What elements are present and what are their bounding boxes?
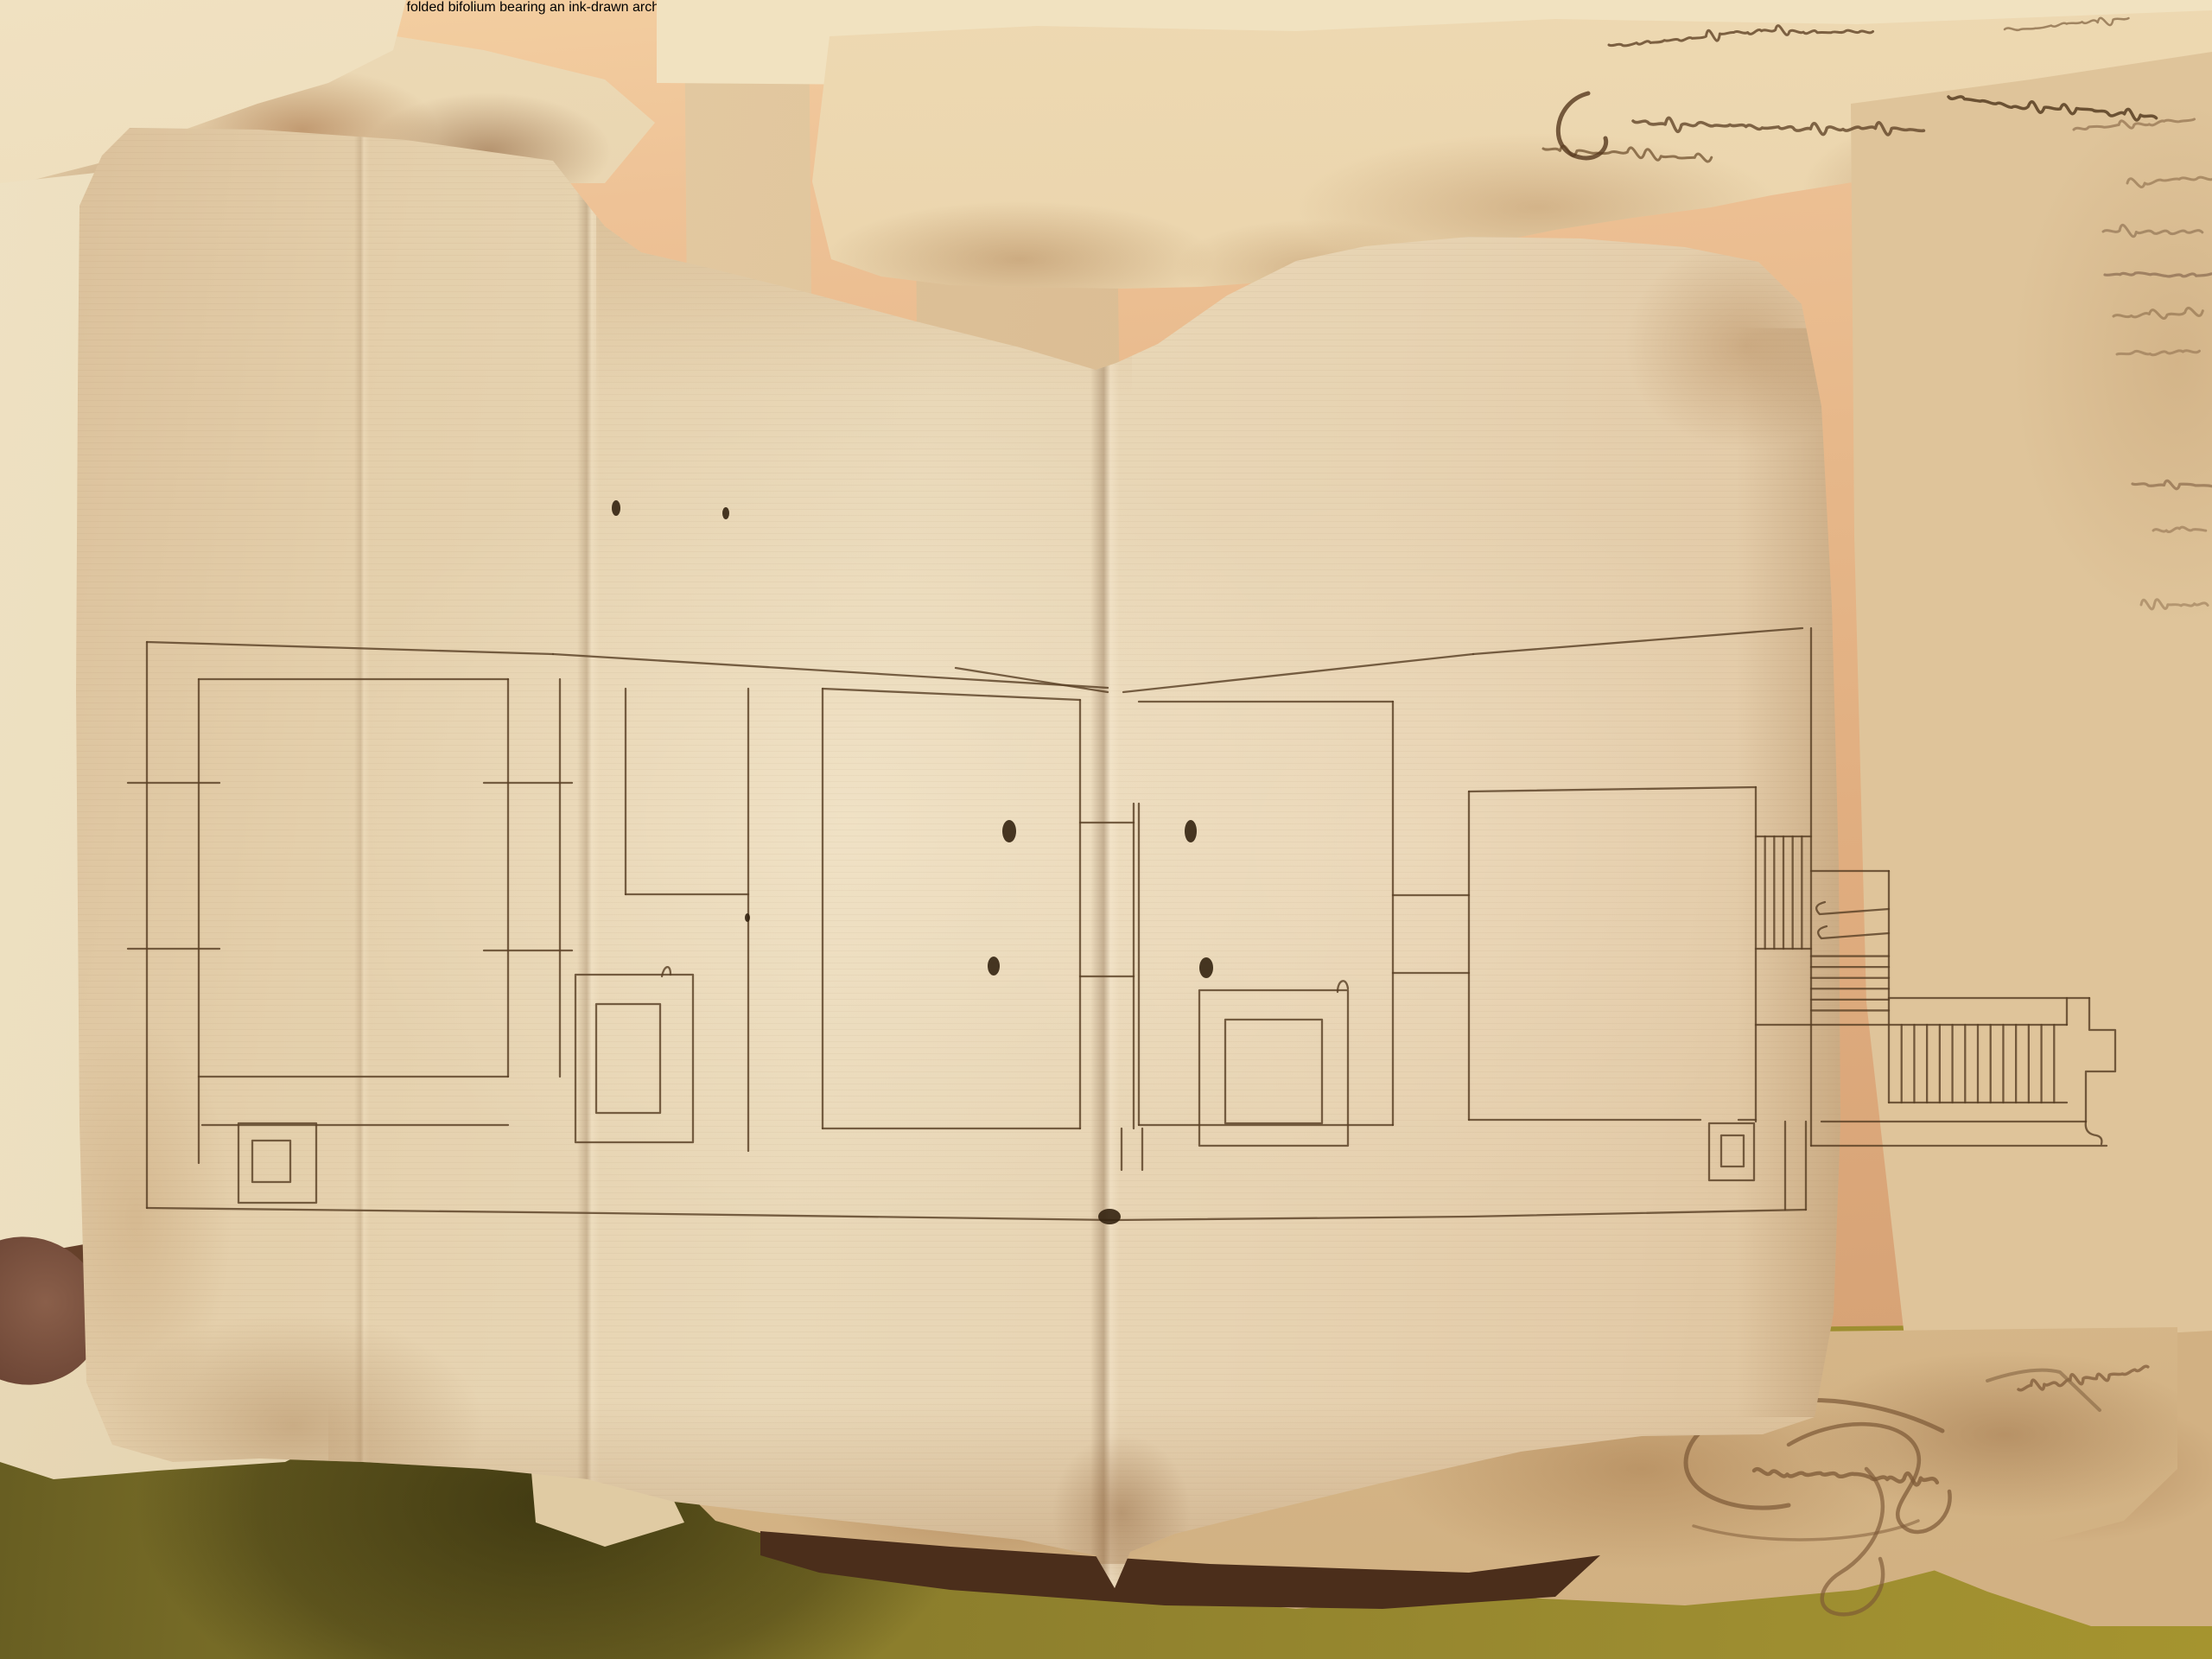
photo-canvas: Photograph of early-modern archival pape… [0, 0, 2212, 1659]
